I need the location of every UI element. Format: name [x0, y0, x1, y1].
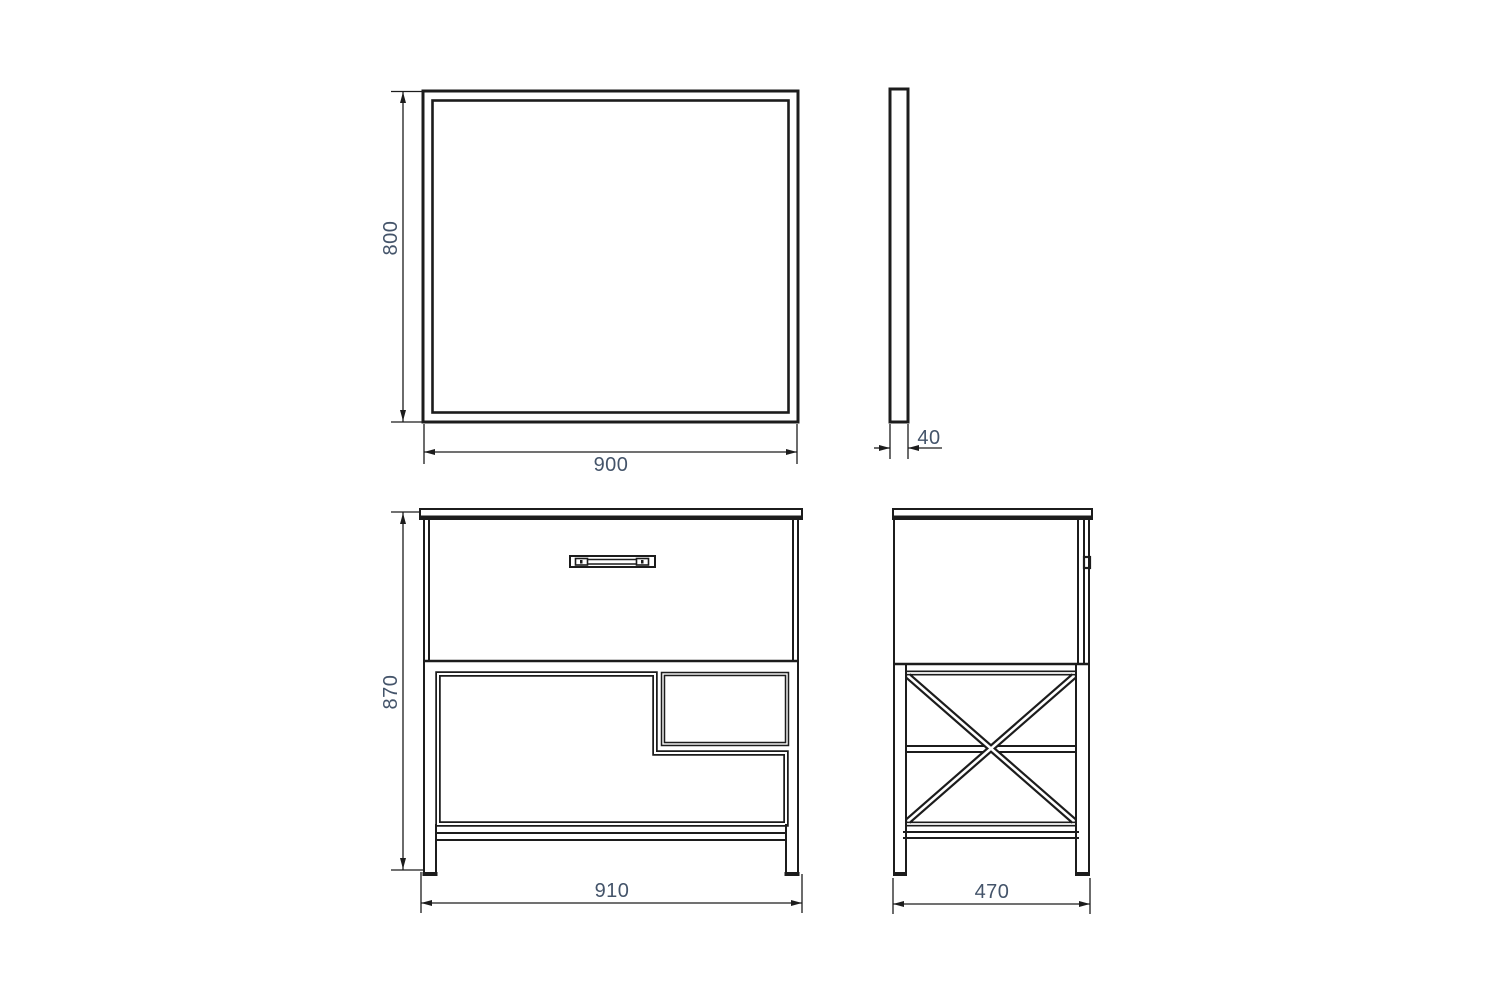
- arrowhead-right: [791, 900, 802, 906]
- mirror-side-profile: [890, 89, 908, 422]
- mirror-front-view: [391, 91, 798, 464]
- arrowhead-up: [400, 92, 406, 103]
- technical-drawing: 800 900 40: [0, 0, 1500, 1000]
- arrowhead-down: [400, 858, 406, 869]
- mirror-height-label: 800: [380, 221, 402, 256]
- arrowhead-right: [1079, 901, 1090, 907]
- mirror-thickness-label: 40: [917, 427, 940, 449]
- handle-screw: [580, 560, 583, 564]
- mirror-outer-frame: [423, 91, 798, 422]
- cabinet-side-view: [893, 509, 1092, 914]
- arrowhead-inward-right: [879, 445, 890, 451]
- arrowhead-up: [400, 513, 406, 524]
- shelf-frame-outline: [438, 674, 786, 824]
- cabinet-height-label: 870: [380, 675, 402, 710]
- shelf-box: [663, 674, 787, 744]
- cabinet-depth-label: 470: [975, 881, 1010, 903]
- arrowhead-down: [400, 410, 406, 421]
- cross-brace-x: [908, 676, 1074, 821]
- cabinet-front-view: [391, 509, 802, 913]
- shelf-box-hollow: [663, 674, 787, 744]
- arrowhead-right: [786, 449, 797, 455]
- mirror-side-view: [874, 89, 942, 459]
- arrowhead-left: [893, 901, 904, 907]
- arrowhead-left: [424, 449, 435, 455]
- handle-screw: [641, 560, 644, 564]
- mirror-inner-frame: [433, 101, 789, 413]
- handle-side-profile: [1084, 557, 1090, 568]
- shelf-frame-hollow: [438, 674, 786, 824]
- mirror-height-dimension: [391, 92, 424, 423]
- mirror-width-label: 900: [594, 454, 629, 476]
- cabinet-width-label: 910: [595, 880, 630, 902]
- drawing-canvas: 800 900 40: [0, 0, 1500, 1000]
- arrowhead-left: [421, 900, 432, 906]
- drawer-handle: [570, 556, 655, 567]
